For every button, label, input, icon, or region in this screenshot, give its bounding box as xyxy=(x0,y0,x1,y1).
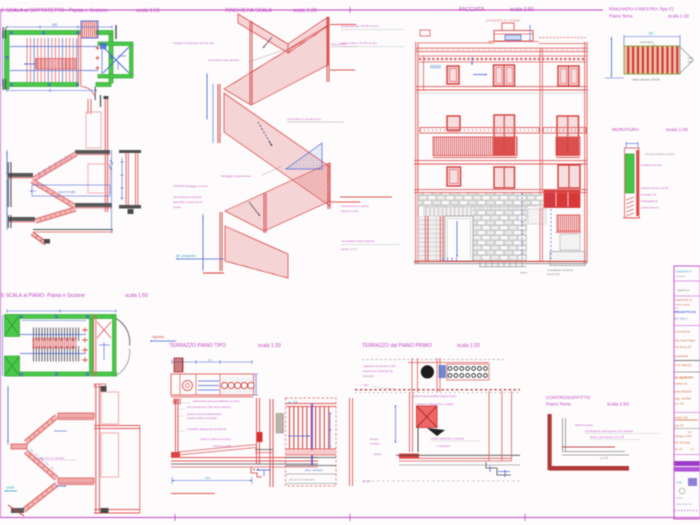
svg-text:scala 1:50: scala 1:50 xyxy=(125,293,148,299)
svg-text:tinteggiatura: tinteggiatura xyxy=(641,199,658,203)
svg-text:scala 1:20: scala 1:20 xyxy=(258,343,281,349)
svg-text:VARIANTE IN: VARIANTE IN xyxy=(675,298,692,302)
svg-text:dal p. terrazzo: dal p. terrazzo xyxy=(305,468,323,472)
svg-text:FACCIATA: FACCIATA xyxy=(459,7,485,13)
svg-text:scala 1:50: scala 1:50 xyxy=(675,416,688,420)
svg-text:Via Roma 15: Via Roma 15 xyxy=(675,345,692,349)
svg-text:450: 450 xyxy=(205,476,210,480)
svg-text:con pendenza 1,5% verso estern: con pendenza 1,5% verso esterno xyxy=(187,405,231,409)
svg-text:intonaco civile: intonaco civile xyxy=(213,444,232,448)
svg-text:faretto: faretto xyxy=(370,437,379,441)
svg-text:telaio tubolare 30x30: telaio tubolare 30x30 xyxy=(632,78,660,82)
svg-text:travi: travi xyxy=(363,383,369,387)
svg-text:16x17,5=280: 16x17,5=280 xyxy=(58,190,76,194)
svg-text:file T02.dwg: file T02.dwg xyxy=(675,441,690,445)
svg-text:Arch. Bianchi: Arch. Bianchi xyxy=(675,363,692,367)
svg-text:SEZIONI P: SEZIONI P xyxy=(676,270,691,274)
svg-text:quota: quota xyxy=(374,452,382,456)
svg-text:pavimento gres porcellanato su: pavimento gres porcellanato su letto xyxy=(193,399,240,403)
svg-text:fg. 12: fg. 12 xyxy=(675,447,682,451)
svg-text:ingresso: ingresso xyxy=(152,335,164,339)
svg-text:isolante termico: isolante termico xyxy=(641,163,662,167)
svg-text:part.: part. xyxy=(688,60,694,64)
svg-text:massetto alleggerito pendenze: massetto alleggerito pendenze xyxy=(187,427,227,431)
svg-text:20: 20 xyxy=(208,358,212,362)
svg-text:Sig. Rossi Mario: Sig. Rossi Mario xyxy=(675,339,696,343)
svg-text:pavimento esistente da: pavimento esistente da xyxy=(363,369,393,373)
svg-text:TERRAZZO PIANO TIPO: TERRAZZO PIANO TIPO xyxy=(169,343,226,349)
svg-text:pietra: pietra xyxy=(520,271,527,275)
svg-text:oggetto pr: oggetto pr xyxy=(677,288,690,292)
svg-text:comune: comune xyxy=(676,275,686,278)
svg-text:quota colmo +11,90 mt slm: quota colmo +11,90 mt slm xyxy=(341,41,377,45)
svg-text:cristallo temperato sui due la: cristallo temperato sui due lati xyxy=(173,41,214,45)
svg-text:faretti incasso: faretti incasso xyxy=(575,423,593,427)
svg-text:rev. 02: rev. 02 xyxy=(675,402,684,406)
svg-text:colore bianco: colore bianco xyxy=(641,206,659,210)
svg-text:150: 150 xyxy=(648,32,654,36)
svg-text:spess. cm 3: spess. cm 3 xyxy=(341,247,357,251)
svg-text:420: 420 xyxy=(52,23,58,27)
svg-text:massetto pendenze 1,5%: massetto pendenze 1,5% xyxy=(363,364,396,368)
svg-text:scala come da: scala come da xyxy=(676,503,692,506)
svg-text:rivestimento in pietra: rivestimento in pietra xyxy=(341,204,369,208)
svg-text:1:50: 1:50 xyxy=(676,481,682,485)
svg-text:CHIODI fissaggio a fuoco: CHIODI fissaggio a fuoco xyxy=(173,184,208,188)
svg-text:def. lotto 2: def. lotto 2 xyxy=(675,317,689,321)
svg-text:disegno CAD: disegno CAD xyxy=(675,434,691,438)
svg-text:lastre cartongesso sp.1,25: lastre cartongesso sp.1,25 xyxy=(590,435,624,439)
svg-text:intonaco plastico rustico: intonaco plastico rustico xyxy=(645,152,675,156)
svg-text:timbro: timbro xyxy=(676,497,684,500)
svg-text:tav. A3: tav. A3 xyxy=(675,424,684,428)
svg-text:massetto alleggerito in argill: massetto alleggerito in argilla xyxy=(416,402,454,406)
svg-text:quota 0,00: quota 0,00 xyxy=(547,272,560,276)
svg-text:committente: committente xyxy=(675,330,691,334)
svg-text:doppio strato incrociato: doppio strato incrociato xyxy=(187,416,217,420)
svg-text:zoccolatura lastre granito: zoccolatura lastre granito xyxy=(341,239,375,243)
svg-text:opaco: opaco xyxy=(173,205,182,209)
svg-text:scala 1:20: scala 1:20 xyxy=(668,14,689,19)
svg-text:prospetto su strada: prospetto su strada xyxy=(486,18,521,23)
svg-text:corrimano: corrimano xyxy=(640,40,654,44)
svg-text:vedi: vedi xyxy=(688,56,693,60)
svg-text:scala 1:50: scala 1:50 xyxy=(607,402,629,408)
svg-text:data 09/2004: data 09/2004 xyxy=(675,390,692,394)
svg-text:demolire: demolire xyxy=(363,374,374,378)
svg-text:progettista: progettista xyxy=(675,354,689,358)
svg-text:scala 1:20: scala 1:20 xyxy=(457,343,480,349)
svg-text:MURATURA: MURATURA xyxy=(612,127,640,133)
svg-text:dal piano di calpestio: dal piano di calpestio xyxy=(289,478,316,482)
svg-text:E SCALA al PIANO- Pianta e Sez: E SCALA al PIANO- Pianta e Sezione xyxy=(1,293,85,299)
svg-text:alt. parapetto: alt. parapetto xyxy=(176,254,196,258)
svg-text:PROGETTO ES: PROGETTO ES xyxy=(675,310,697,314)
svg-text:Piano Terra: Piano Terra xyxy=(609,14,633,19)
svg-text:solaio in latero-cemento: solaio in latero-cemento xyxy=(200,437,231,441)
svg-text:guaina impermeabile doppio str: guaina impermeabile doppio strato xyxy=(412,394,457,398)
svg-text:RINGHIERA FINESTRA Tipo F): RINGHIERA FINESTRA Tipo F) xyxy=(609,7,674,12)
svg-text:agg. 11/2004: agg. 11/2004 xyxy=(675,397,692,401)
svg-text:solaio esistente in putrelle: solaio esistente in putrelle xyxy=(431,437,465,441)
svg-text:ELABORATO: ELABORATO xyxy=(675,376,694,380)
svg-text:faccia a vista: faccia a vista xyxy=(341,209,359,213)
svg-text:scala 1:20: scala 1:20 xyxy=(293,8,317,14)
svg-text:fissaggio a pavimento: fissaggio a pavimento xyxy=(221,174,251,178)
svg-text:incasso: incasso xyxy=(370,442,380,446)
svg-text:scala 1:05: scala 1:05 xyxy=(666,127,688,133)
svg-text:uscita: uscita xyxy=(6,486,15,490)
svg-text:RINGHIERA SCALA: RINGHIERA SCALA xyxy=(225,8,273,14)
svg-text:quota gronda +10,85 mt slm: quota gronda +10,85 mt slm xyxy=(341,24,379,28)
svg-text:verniciatura a polvere: verniciatura a polvere xyxy=(173,195,202,199)
svg-text:pendinatura cartongesso con is: pendinatura cartongesso con isolante xyxy=(585,429,633,433)
svg-text:scala 1:50: scala 1:50 xyxy=(136,8,160,14)
svg-text:intonaco int.: intonaco int. xyxy=(641,193,657,197)
svg-text:blocchi termici sp.25: blocchi termici sp.25 xyxy=(641,186,669,190)
svg-text:CONTROSOFFITTO: CONTROSOFFITTO xyxy=(546,395,591,401)
svg-text:n.2: n.2 xyxy=(690,447,694,451)
svg-text:marciapiede esistente: marciapiede esistente xyxy=(547,268,574,272)
svg-text:cm 30: cm 30 xyxy=(600,456,608,460)
svg-text:e tavelloni: e tavelloni xyxy=(437,444,450,448)
svg-text:TERRAZZO dal PIANO PRIMO: TERRAZZO dal PIANO PRIMO xyxy=(362,343,432,349)
svg-text:corrimano tubo acciaio: corrimano tubo acciaio xyxy=(208,58,239,62)
svg-text:corso opera: corso opera xyxy=(675,303,690,307)
svg-text:Piano Terra: Piano Terra xyxy=(546,402,571,408)
svg-text:corrimano in acciaio inox: corrimano in acciaio inox xyxy=(287,117,321,121)
svg-text:scala 1:50: scala 1:50 xyxy=(510,7,534,13)
svg-text:alt. 100: alt. 100 xyxy=(288,400,298,404)
svg-text:E SCALA al SOTTOTETTO - Pianta: E SCALA al SOTTOTETTO - Pianta e Sezione xyxy=(1,8,108,14)
svg-text:tinta RAL colore scuro: tinta RAL colore scuro xyxy=(173,200,203,204)
svg-text:grafico es.: grafico es. xyxy=(675,382,688,386)
